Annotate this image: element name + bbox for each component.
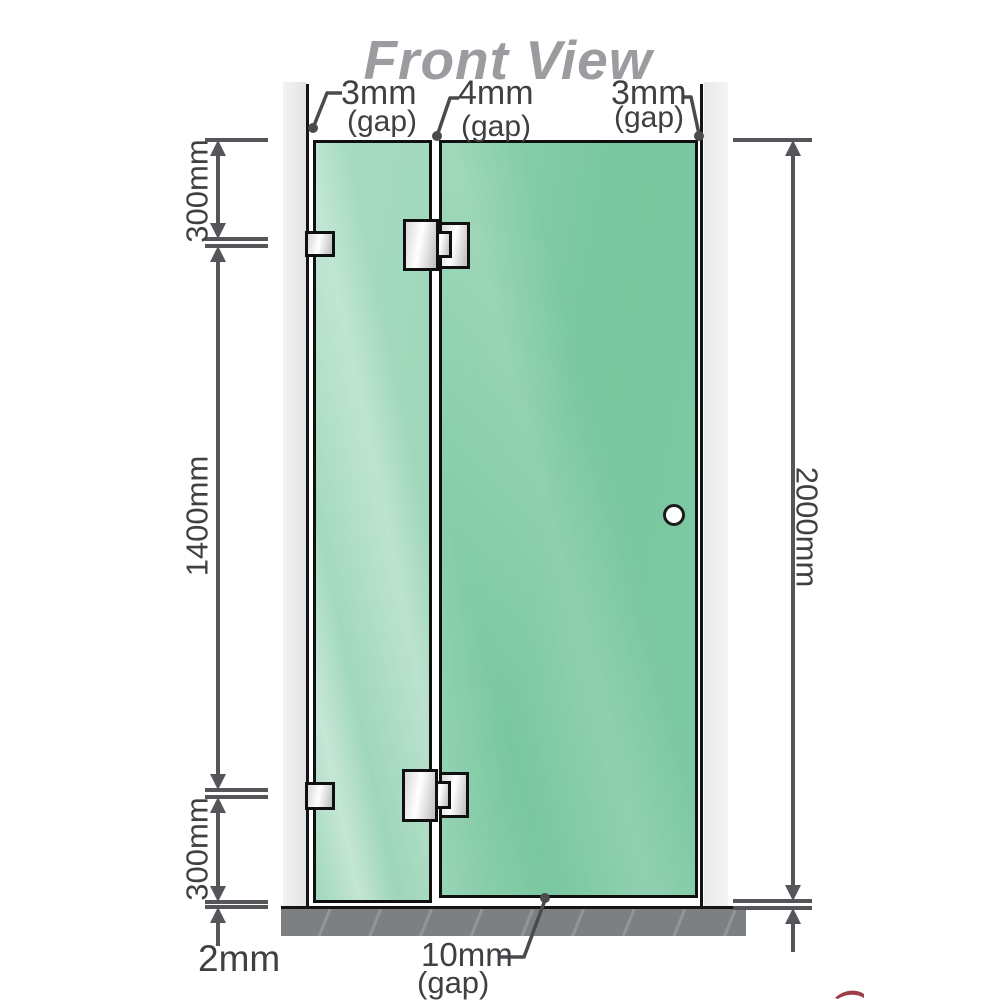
floor-base (281, 906, 746, 936)
front-view-diagram: Front View (0, 0, 1000, 1000)
wall-bracket-bottom (305, 782, 335, 810)
left-wall (283, 82, 307, 906)
gap-label-middle-value: 4mm (458, 76, 534, 110)
dim-label-middle-1400mm: 1400mm (182, 456, 213, 577)
dim-label-top-300mm: 300mm (182, 139, 213, 242)
logo-swoosh (835, 991, 864, 999)
wall-bracket-top (305, 231, 335, 257)
hinge-top-panel-plate (403, 219, 439, 271)
door-handle-icon (663, 504, 685, 526)
dim-label-bottom-300mm: 300mm (182, 797, 213, 900)
right-wall-edge-line (700, 84, 703, 906)
gap-label-right-suffix: (gap) (614, 103, 684, 133)
gap-label-left-suffix: (gap) (347, 107, 417, 137)
dim-label-total-2000mm: 2000mm (792, 467, 823, 588)
gap-label-bottom-suffix: (gap) (417, 967, 489, 998)
door-glass-panel (439, 140, 698, 898)
dim-label-floor-gap-2mm: 2mm (198, 940, 280, 977)
gap-label-middle-suffix: (gap) (461, 112, 531, 142)
hinge-bottom-panel-plate (402, 769, 438, 822)
right-wall (704, 82, 728, 906)
